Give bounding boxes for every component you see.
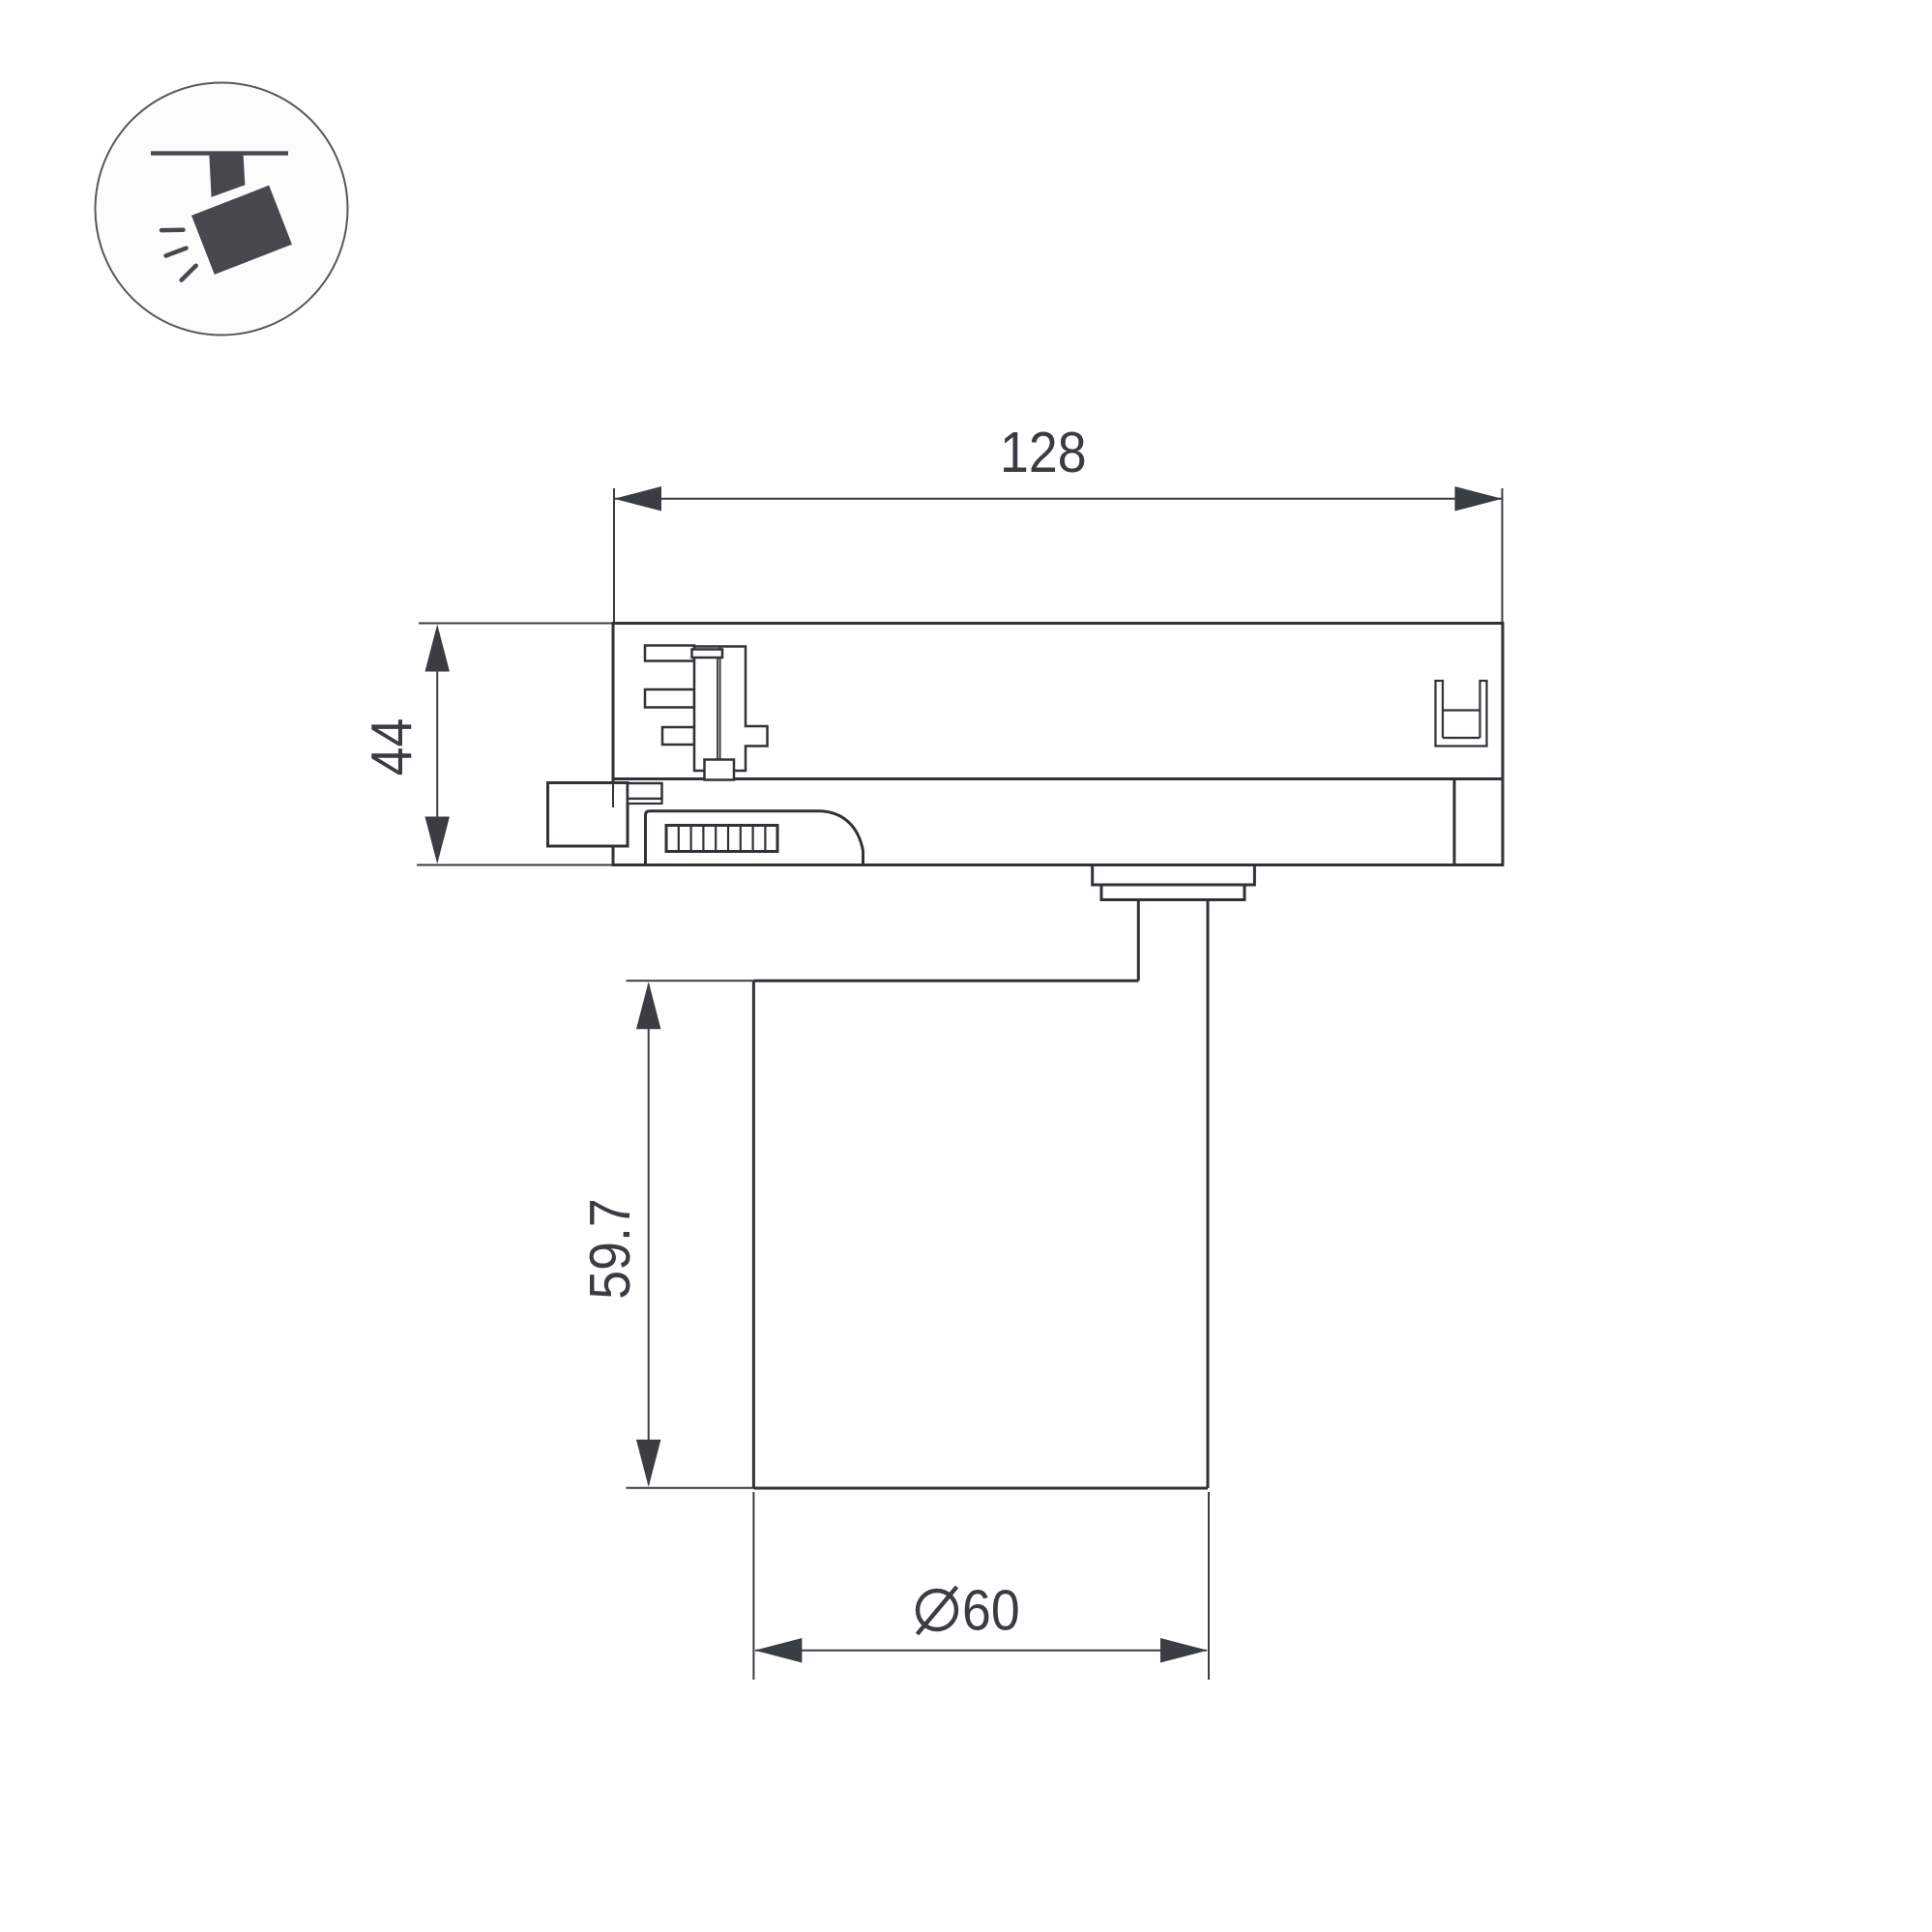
svg-text:44: 44	[360, 718, 424, 776]
svg-text:60: 60	[962, 1578, 1020, 1642]
svg-text:128: 128	[1000, 420, 1087, 483]
svg-text:59.7: 59.7	[578, 1198, 642, 1299]
